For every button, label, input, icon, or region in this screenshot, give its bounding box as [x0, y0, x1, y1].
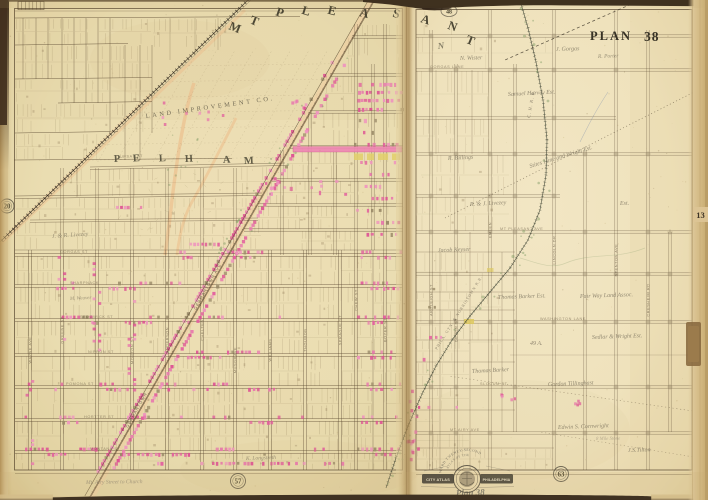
svg-text:38: 38: [644, 29, 660, 44]
svg-text:GORGAS LANE: GORGAS LANE: [430, 65, 464, 69]
svg-text:N. Wister: N. Wister: [459, 55, 483, 62]
svg-text:LINCOLN DR: LINCOLN DR: [553, 236, 557, 265]
svg-text:ANDERSON: ANDERSON: [166, 327, 170, 353]
svg-text:CRESHEIM RD: CRESHEIM RD: [647, 283, 651, 316]
svg-text:48: 48: [446, 10, 452, 16]
svg-text:J.S.Tilton: J.S.Tilton: [628, 447, 651, 454]
svg-text:MORTON ST: MORTON ST: [131, 336, 135, 364]
svg-text:WILLIAMS: WILLIAMS: [269, 339, 273, 362]
svg-text:Est.: Est.: [619, 201, 629, 207]
svg-text:PLAN: PLAN: [590, 29, 632, 43]
svg-text:H: H: [185, 154, 194, 165]
svg-text:SPRAGUE ST: SPRAGUE ST: [339, 315, 343, 346]
svg-text:BOYER ST: BOYER ST: [384, 318, 388, 342]
svg-text:Jacob Keyser: Jacob Keyser: [438, 247, 471, 254]
svg-text:CHEW ST: CHEW ST: [355, 289, 359, 311]
svg-text:A: A: [223, 155, 232, 166]
svg-text:WASHINGTON LANE: WASHINGTON LANE: [540, 317, 586, 321]
svg-text:HORTTER ST: HORTTER ST: [84, 415, 114, 419]
svg-text:STENTON AVE: STENTON AVE: [615, 244, 619, 277]
svg-text:MUSGRAVE: MUSGRAVE: [234, 347, 238, 373]
svg-text:M: M: [244, 155, 255, 167]
svg-text:CHELTEN: CHELTEN: [201, 319, 205, 341]
svg-text:THOURON: THOURON: [304, 328, 308, 351]
svg-text:SHARPNACK: SHARPNACK: [70, 281, 99, 285]
svg-text:L: L: [159, 153, 167, 164]
svg-text:WAYNE AVE: WAYNE AVE: [29, 336, 33, 363]
svg-text:UPSAL ST: UPSAL ST: [120, 154, 143, 159]
svg-text:MT PLEASANT AVE: MT PLEASANT AVE: [500, 227, 543, 231]
svg-text:POMONA ST: POMONA ST: [66, 382, 94, 386]
svg-text:MONTANA ST: MONTANA ST: [90, 447, 120, 451]
svg-text:J. Gorgas: J. Gorgas: [556, 46, 580, 53]
svg-text:ARDLEIGH ST: ARDLEIGH ST: [430, 284, 434, 316]
svg-text:EMLEN: EMLEN: [489, 222, 493, 238]
svg-text:SEDGWICK ST: SEDGWICK ST: [80, 315, 113, 319]
svg-text:DEVON ST: DEVON ST: [455, 318, 459, 342]
svg-text:49 A.: 49 A.: [530, 340, 543, 347]
svg-text:GREENE ST: GREENE ST: [61, 316, 65, 343]
svg-text:GORGAS ST: GORGAS ST: [60, 250, 88, 254]
svg-text:NIPPON ST: NIPPON ST: [88, 350, 114, 354]
svg-text:13: 13: [696, 210, 705, 220]
svg-text:R. Porter: R. Porter: [597, 53, 620, 60]
